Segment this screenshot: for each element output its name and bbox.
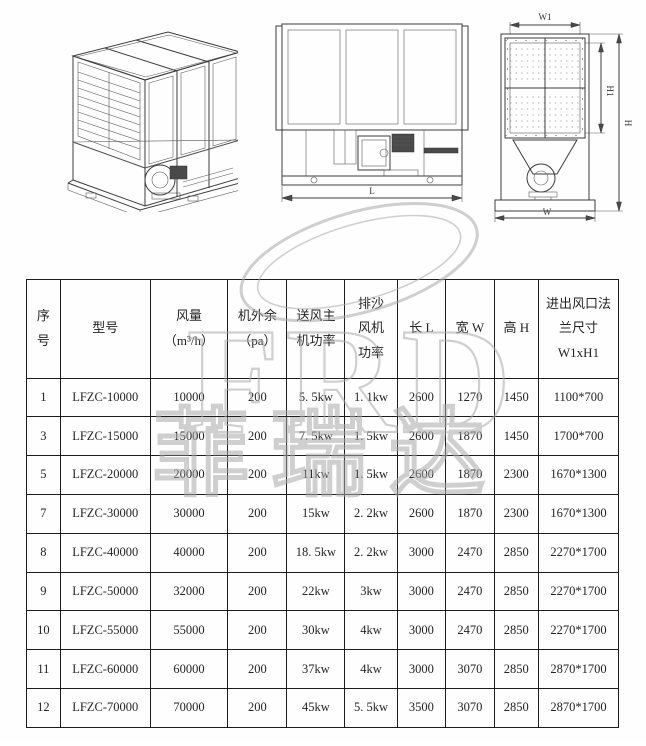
dimension-w1: W1 bbox=[510, 12, 580, 34]
table-cell: 3000 bbox=[397, 533, 446, 572]
table-cell: 7. 5kw bbox=[287, 417, 345, 456]
hopper-funnel bbox=[513, 140, 577, 200]
table-cell: 3kw bbox=[345, 572, 397, 611]
table-cell: 2850 bbox=[494, 572, 538, 611]
table-cell: LFZC-70000 bbox=[60, 689, 150, 728]
table-cell: 9 bbox=[27, 572, 61, 611]
table-cell: 11 bbox=[27, 650, 61, 689]
table-cell: 1. 5kw bbox=[345, 456, 397, 495]
table-cell: 3000 bbox=[397, 611, 446, 650]
table-cell: 2470 bbox=[446, 611, 495, 650]
table-cell: 1450 bbox=[494, 417, 538, 456]
table-cell: 3070 bbox=[446, 650, 495, 689]
table-cell: 1870 bbox=[446, 417, 495, 456]
col-header-width: 宽 W bbox=[446, 280, 495, 379]
table-cell: 3500 bbox=[397, 689, 446, 728]
table-cell: 2850 bbox=[494, 533, 538, 572]
table-cell: 200 bbox=[228, 495, 287, 534]
col-header-ext-pressure: 机外余 （pa） bbox=[228, 280, 287, 379]
table-cell: 3000 bbox=[397, 572, 446, 611]
table-cell: 3000 bbox=[397, 650, 446, 689]
dim-label-h: H bbox=[623, 120, 633, 127]
front-view-svg: L bbox=[272, 20, 474, 208]
table-cell: 40000 bbox=[150, 533, 228, 572]
header-row: 序 号 型号 风量 （m³/h） 机外余 （pa） 送风主 机功率 排沙 风机 … bbox=[27, 280, 619, 379]
table-cell: 11kw bbox=[287, 456, 345, 495]
col-header-index: 序 号 bbox=[27, 280, 61, 379]
isometric-view-svg bbox=[28, 20, 238, 212]
door-panel bbox=[288, 30, 340, 124]
front-view-drawing: L bbox=[272, 20, 474, 208]
motor bbox=[170, 166, 187, 179]
table-cell: 1870 bbox=[446, 456, 495, 495]
table-cell: 1270 bbox=[446, 378, 495, 417]
table-cell: 2600 bbox=[397, 378, 446, 417]
table-cell: LFZC-55000 bbox=[60, 611, 150, 650]
table-cell: 18. 5kw bbox=[287, 533, 345, 572]
col-header-flange: 进出风口法 兰尺寸 W1xH1 bbox=[539, 280, 619, 379]
table-cell: 2850 bbox=[494, 650, 538, 689]
table-cell: 30kw bbox=[287, 611, 345, 650]
table-cell: 2. 2kw bbox=[345, 533, 397, 572]
table-cell: 2270*1700 bbox=[539, 533, 619, 572]
table-cell: 5. 5kw bbox=[345, 689, 397, 728]
side-view-drawing: W1 bbox=[483, 8, 639, 226]
table-cell: 2850 bbox=[494, 689, 538, 728]
table-cell: 1870 bbox=[446, 495, 495, 534]
table-cell: 200 bbox=[228, 689, 287, 728]
dimension-h: H bbox=[589, 34, 633, 211]
table-cell: 15000 bbox=[150, 417, 228, 456]
motor-base bbox=[384, 170, 418, 176]
table-cell: 4kw bbox=[345, 611, 397, 650]
table-cell: 15kw bbox=[287, 495, 345, 534]
col-header-supply-power: 送风主 机功率 bbox=[287, 280, 345, 379]
table-row: 7 LFZC-30000 30000 200 15kw 2. 2kw 2600 … bbox=[27, 495, 619, 534]
col-header-airflow: 风量 （m³/h） bbox=[150, 280, 228, 379]
dim-label-w: W bbox=[543, 207, 552, 217]
isometric-view-drawing bbox=[28, 20, 238, 212]
table-cell: 1. 5kw bbox=[345, 417, 397, 456]
table-cell: 1700*700 bbox=[539, 417, 619, 456]
table-cell: LFZC-30000 bbox=[60, 495, 150, 534]
table-cell: 5. 5kw bbox=[287, 378, 345, 417]
table-cell: 1100*700 bbox=[539, 378, 619, 417]
table-cell: 3 bbox=[27, 417, 61, 456]
table-cell: 10 bbox=[27, 611, 61, 650]
table-cell: 7 bbox=[27, 495, 61, 534]
table-cell: 45kw bbox=[287, 689, 345, 728]
dim-label-w1: W1 bbox=[539, 12, 552, 22]
base-rail bbox=[282, 176, 462, 185]
table-cell: 200 bbox=[228, 378, 287, 417]
table-row: 12 LFZC-70000 70000 200 45kw 5. 5kw 3500… bbox=[27, 689, 619, 728]
dim-label-h1: H1 bbox=[605, 86, 615, 97]
technical-drawings: L W1 bbox=[0, 0, 646, 232]
table-cell: 55000 bbox=[150, 611, 228, 650]
table-cell: 200 bbox=[228, 417, 287, 456]
table-row: 10 LFZC-55000 55000 200 30kw 4kw 3000 24… bbox=[27, 611, 619, 650]
table-cell: 3070 bbox=[446, 689, 495, 728]
table-cell: LFZC-10000 bbox=[60, 378, 150, 417]
table-cell: 1670*1300 bbox=[539, 495, 619, 534]
blower-housing bbox=[358, 136, 390, 170]
table-cell: 200 bbox=[228, 456, 287, 495]
spec-table: 序 号 型号 风量 （m³/h） 机外余 （pa） 送风主 机功率 排沙 风机 … bbox=[26, 279, 619, 728]
table-cell: 30000 bbox=[150, 495, 228, 534]
table-cell: LFZC-20000 bbox=[60, 456, 150, 495]
dimension-length: L bbox=[282, 186, 462, 202]
col-header-height: 高 H bbox=[494, 280, 538, 379]
door-panel bbox=[346, 30, 398, 124]
table-cell: LFZC-50000 bbox=[60, 572, 150, 611]
table-row: 9 LFZC-50000 32000 200 22kw 3kw 3000 247… bbox=[27, 572, 619, 611]
table-cell: 5 bbox=[27, 456, 61, 495]
table-cell: 2270*1700 bbox=[539, 611, 619, 650]
col-header-length: 长 L bbox=[397, 280, 446, 379]
table-cell: 10000 bbox=[150, 378, 228, 417]
col-header-sand-power: 排沙 风机 功率 bbox=[345, 280, 397, 379]
table-row: 8 LFZC-40000 40000 200 18. 5kw 2. 2kw 30… bbox=[27, 533, 619, 572]
table-cell: 2870*1700 bbox=[539, 650, 619, 689]
table-cell: 4kw bbox=[345, 650, 397, 689]
table-cell: 60000 bbox=[150, 650, 228, 689]
spec-sheet-page: L W1 bbox=[0, 0, 646, 741]
table-row: 3 LFZC-15000 15000 200 7. 5kw 1. 5kw 260… bbox=[27, 417, 619, 456]
spec-table-container: 序 号 型号 风量 （m³/h） 机外余 （pa） 送风主 机功率 排沙 风机 … bbox=[26, 279, 619, 728]
table-cell: 200 bbox=[228, 533, 287, 572]
table-cell: 1 bbox=[27, 378, 61, 417]
table-cell: 2600 bbox=[397, 456, 446, 495]
table-cell: 12 bbox=[27, 689, 61, 728]
dimension-w: W bbox=[495, 207, 595, 222]
table-cell: 2600 bbox=[397, 495, 446, 534]
table-cell: 200 bbox=[228, 650, 287, 689]
table-row: 1 LFZC-10000 10000 200 5. 5kw 1. 1kw 260… bbox=[27, 378, 619, 417]
table-cell: 32000 bbox=[150, 572, 228, 611]
table-cell: LFZC-40000 bbox=[60, 533, 150, 572]
table-cell: 22kw bbox=[287, 572, 345, 611]
table-cell: 2470 bbox=[446, 572, 495, 611]
table-cell: 200 bbox=[228, 572, 287, 611]
side-view-svg: W1 bbox=[483, 8, 639, 226]
perforated-panel bbox=[505, 38, 585, 138]
table-cell: 2600 bbox=[397, 417, 446, 456]
drain-pipe bbox=[424, 148, 458, 153]
table-cell: 2270*1700 bbox=[539, 572, 619, 611]
table-row: 5 LFZC-20000 20000 200 11kw 1. 5kw 2600 … bbox=[27, 456, 619, 495]
table-cell: 70000 bbox=[150, 689, 228, 728]
table-cell: 2. 2kw bbox=[345, 495, 397, 534]
table-cell: LFZC-15000 bbox=[60, 417, 150, 456]
table-row: 11 LFZC-60000 60000 200 37kw 4kw 3000 30… bbox=[27, 650, 619, 689]
table-cell: 200 bbox=[228, 611, 287, 650]
table-cell: 2470 bbox=[446, 533, 495, 572]
table-cell: 1. 1kw bbox=[345, 378, 397, 417]
door-panel bbox=[404, 30, 456, 124]
table-cell: 2870*1700 bbox=[539, 689, 619, 728]
table-cell: 2300 bbox=[494, 495, 538, 534]
table-cell: LFZC-60000 bbox=[60, 650, 150, 689]
dim-label-l: L bbox=[369, 186, 375, 196]
table-cell: 2850 bbox=[494, 611, 538, 650]
table-cell: 1450 bbox=[494, 378, 538, 417]
table-cell: 20000 bbox=[150, 456, 228, 495]
table-cell: 37kw bbox=[287, 650, 345, 689]
table-cell: 1670*1300 bbox=[539, 456, 619, 495]
table-cell: 2300 bbox=[494, 456, 538, 495]
side-panels bbox=[145, 52, 238, 168]
col-header-model: 型号 bbox=[60, 280, 150, 379]
table-cell: 8 bbox=[27, 533, 61, 572]
